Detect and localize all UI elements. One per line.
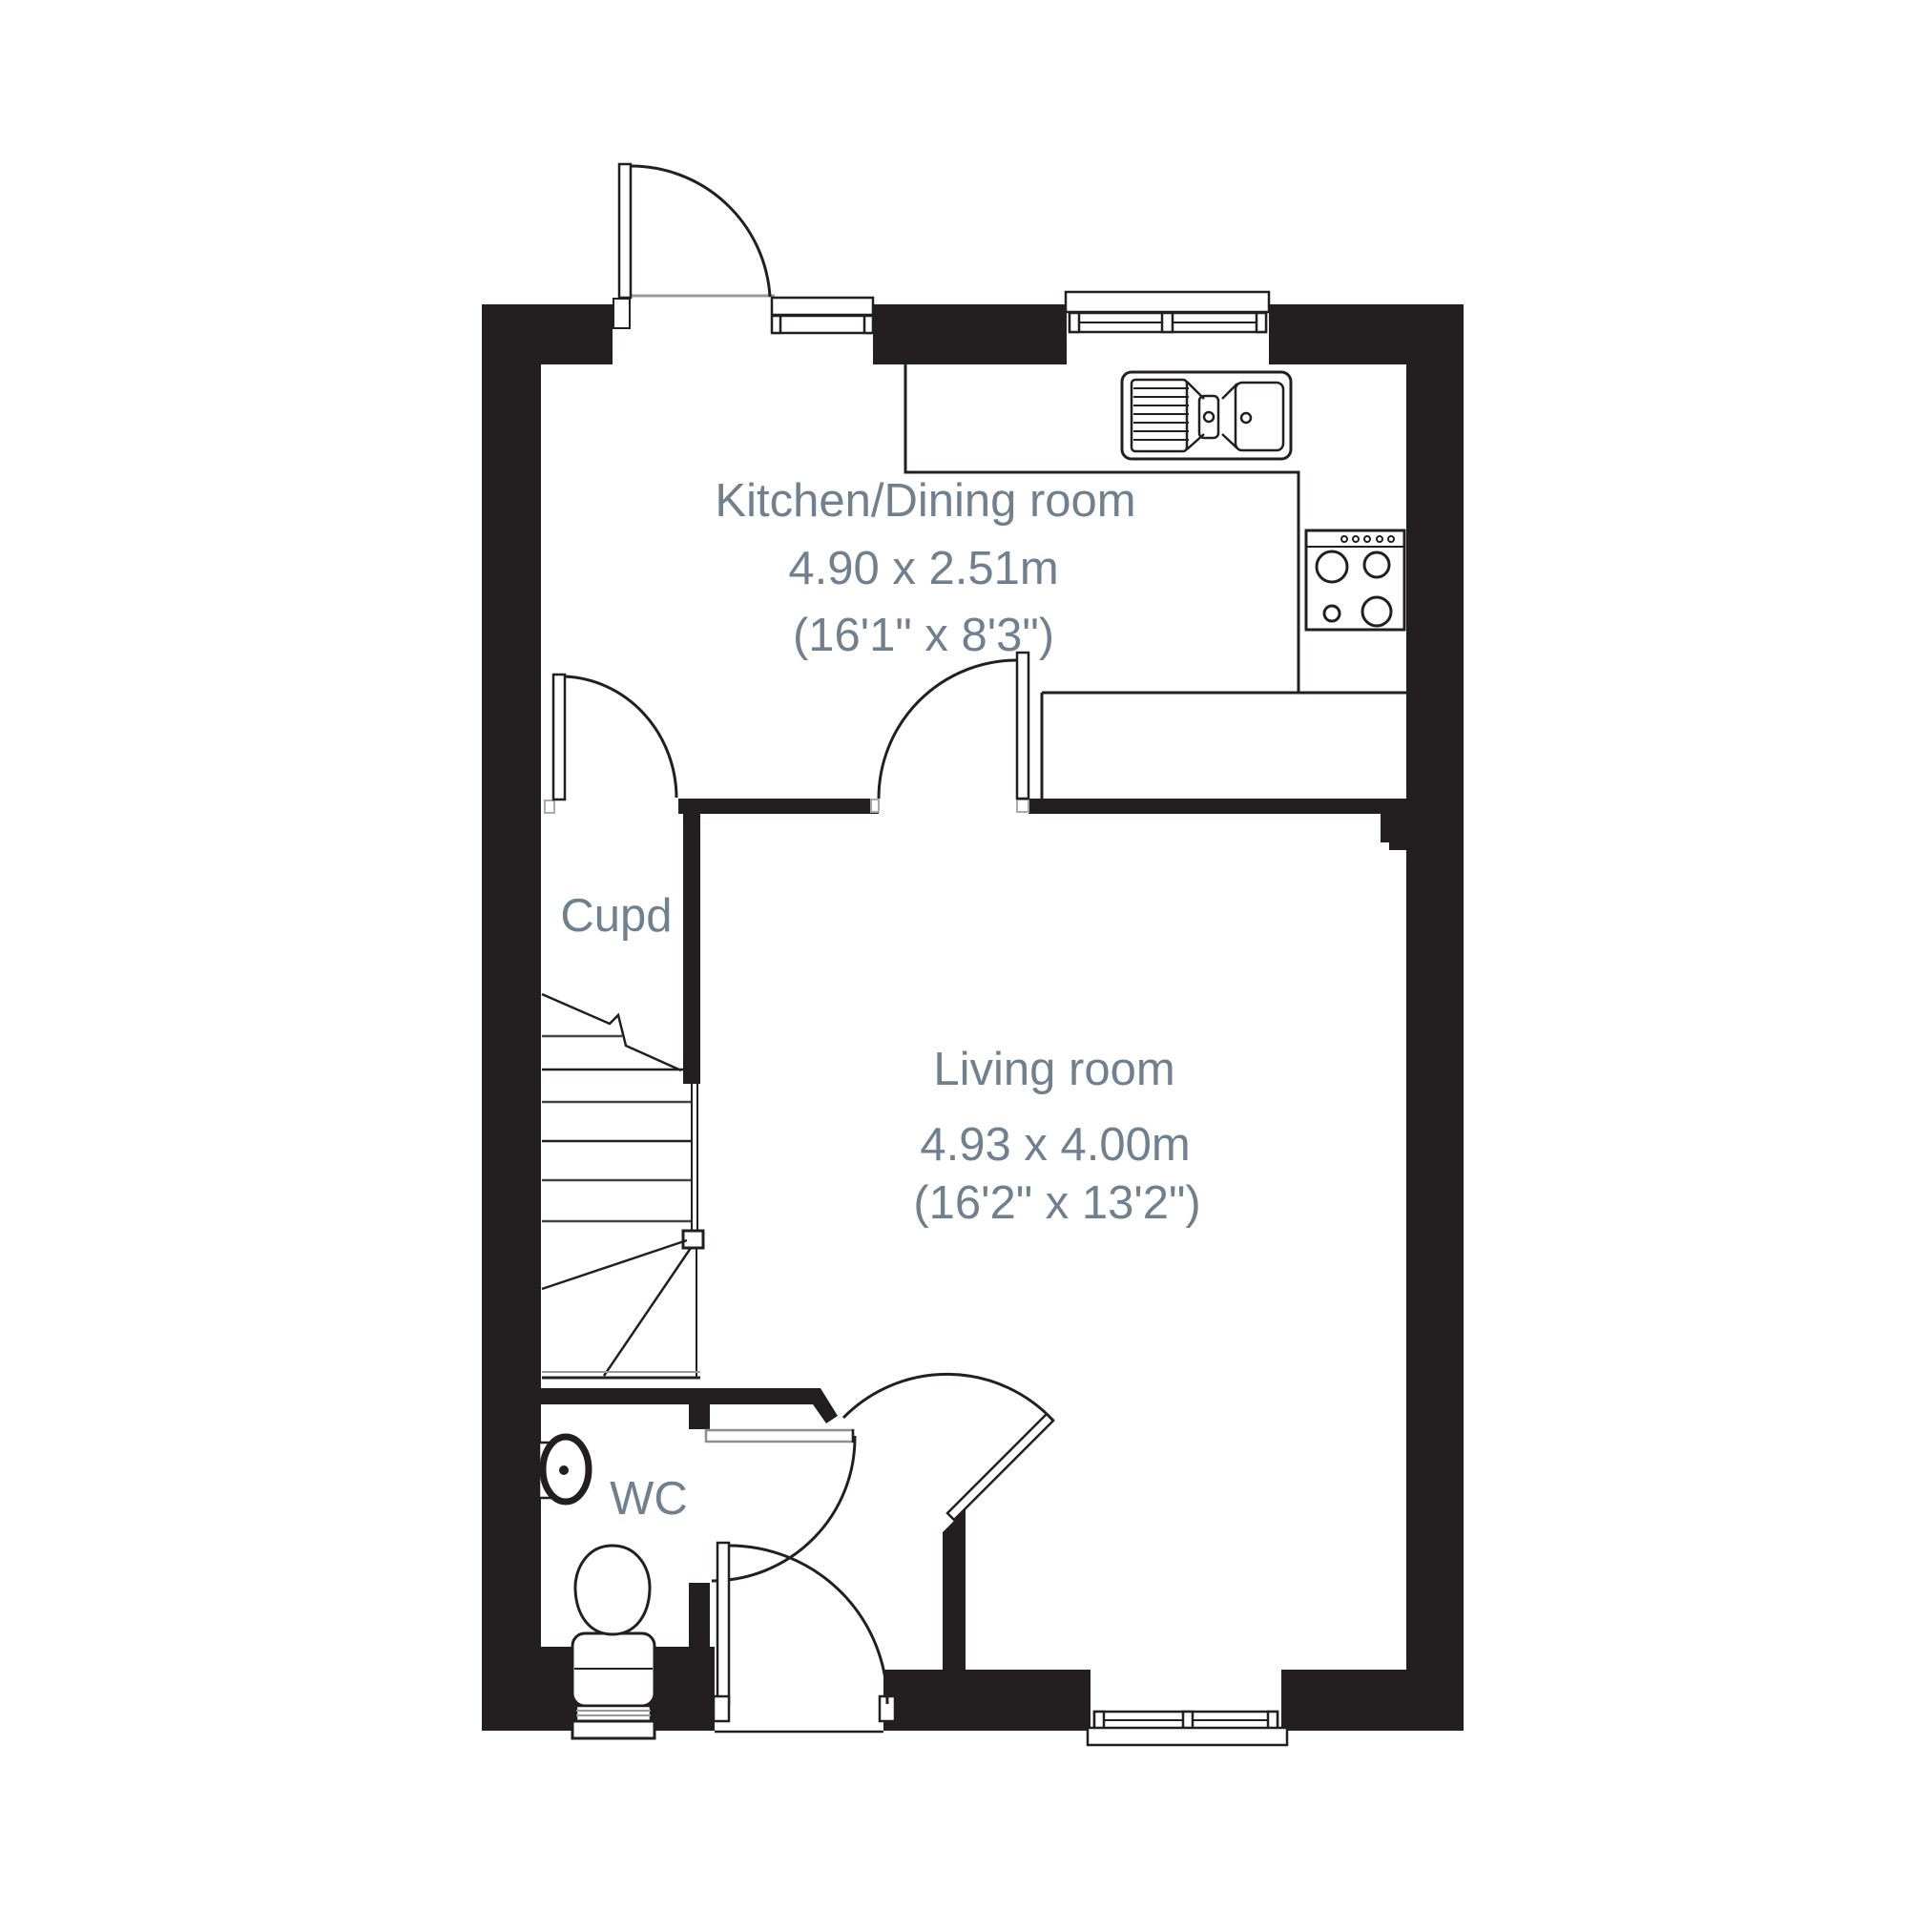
svg-text:4.93 x 4.00m: 4.93 x 4.00m — [920, 1119, 1190, 1171]
svg-text:Cupd: Cupd — [560, 890, 672, 942]
svg-text:Living room: Living room — [933, 1044, 1174, 1095]
svg-text:WC: WC — [610, 1473, 688, 1525]
svg-text:(16'2" x 13'2"): (16'2" x 13'2") — [913, 1177, 1200, 1229]
svg-text:Kitchen/Dining room: Kitchen/Dining room — [715, 475, 1135, 527]
svg-text:(16'1" x 8'3"): (16'1" x 8'3") — [793, 610, 1054, 661]
svg-text:4.90 x 2.51m: 4.90 x 2.51m — [788, 543, 1058, 594]
